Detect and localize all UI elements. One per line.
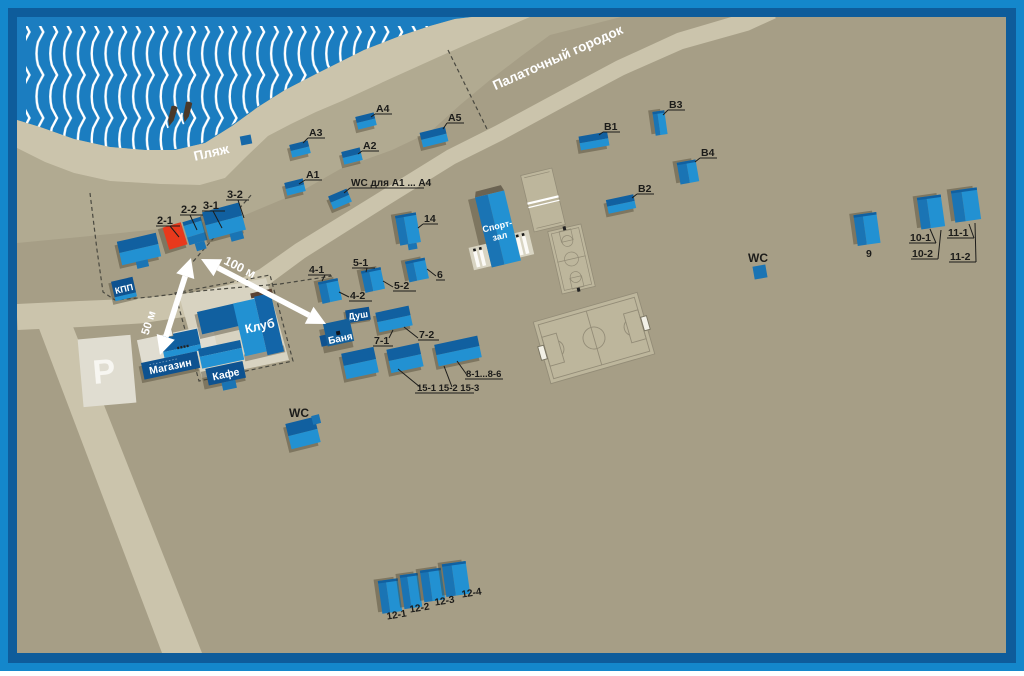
svg-text:8-1...8-6: 8-1...8-6 bbox=[466, 369, 501, 380]
svg-text:7-1: 7-1 bbox=[374, 335, 389, 347]
svg-text:A2: A2 bbox=[363, 140, 377, 152]
svg-text:B4: B4 bbox=[701, 147, 715, 159]
svg-text:WC для А1 ... А4: WC для А1 ... А4 bbox=[351, 178, 432, 189]
svg-text:WC: WC bbox=[748, 251, 768, 265]
svg-text:4-2: 4-2 bbox=[350, 290, 365, 302]
svg-text:A5: A5 bbox=[448, 112, 462, 124]
svg-text:3-1: 3-1 bbox=[203, 200, 219, 212]
svg-text:B1: B1 bbox=[604, 121, 618, 133]
svg-text:WC: WC bbox=[289, 406, 309, 420]
svg-text:9: 9 bbox=[866, 248, 872, 260]
svg-text:7-2: 7-2 bbox=[419, 329, 434, 341]
svg-text:2-2: 2-2 bbox=[181, 204, 197, 216]
svg-text:P: P bbox=[91, 352, 117, 392]
svg-text:5-2: 5-2 bbox=[394, 280, 409, 292]
svg-text:11-1: 11-1 bbox=[948, 227, 969, 239]
svg-text:15-1 15-2 15-3: 15-1 15-2 15-3 bbox=[417, 383, 479, 394]
svg-text:A3: A3 bbox=[309, 127, 323, 139]
svg-text:10-1: 10-1 bbox=[910, 232, 931, 244]
svg-text:2-1: 2-1 bbox=[157, 215, 173, 227]
svg-text:5-1: 5-1 bbox=[353, 257, 368, 269]
svg-text:A4: A4 bbox=[376, 103, 390, 115]
svg-text:6: 6 bbox=[437, 269, 443, 281]
svg-text:B2: B2 bbox=[638, 183, 652, 195]
svg-text:B3: B3 bbox=[669, 99, 683, 111]
svg-text:3-2: 3-2 bbox=[227, 189, 243, 201]
svg-text:14: 14 bbox=[424, 213, 436, 225]
svg-text:A1: A1 bbox=[306, 169, 320, 181]
svg-text:4-1: 4-1 bbox=[309, 264, 324, 276]
svg-text:11-2: 11-2 bbox=[950, 251, 971, 263]
svg-text:10-2: 10-2 bbox=[912, 248, 933, 260]
